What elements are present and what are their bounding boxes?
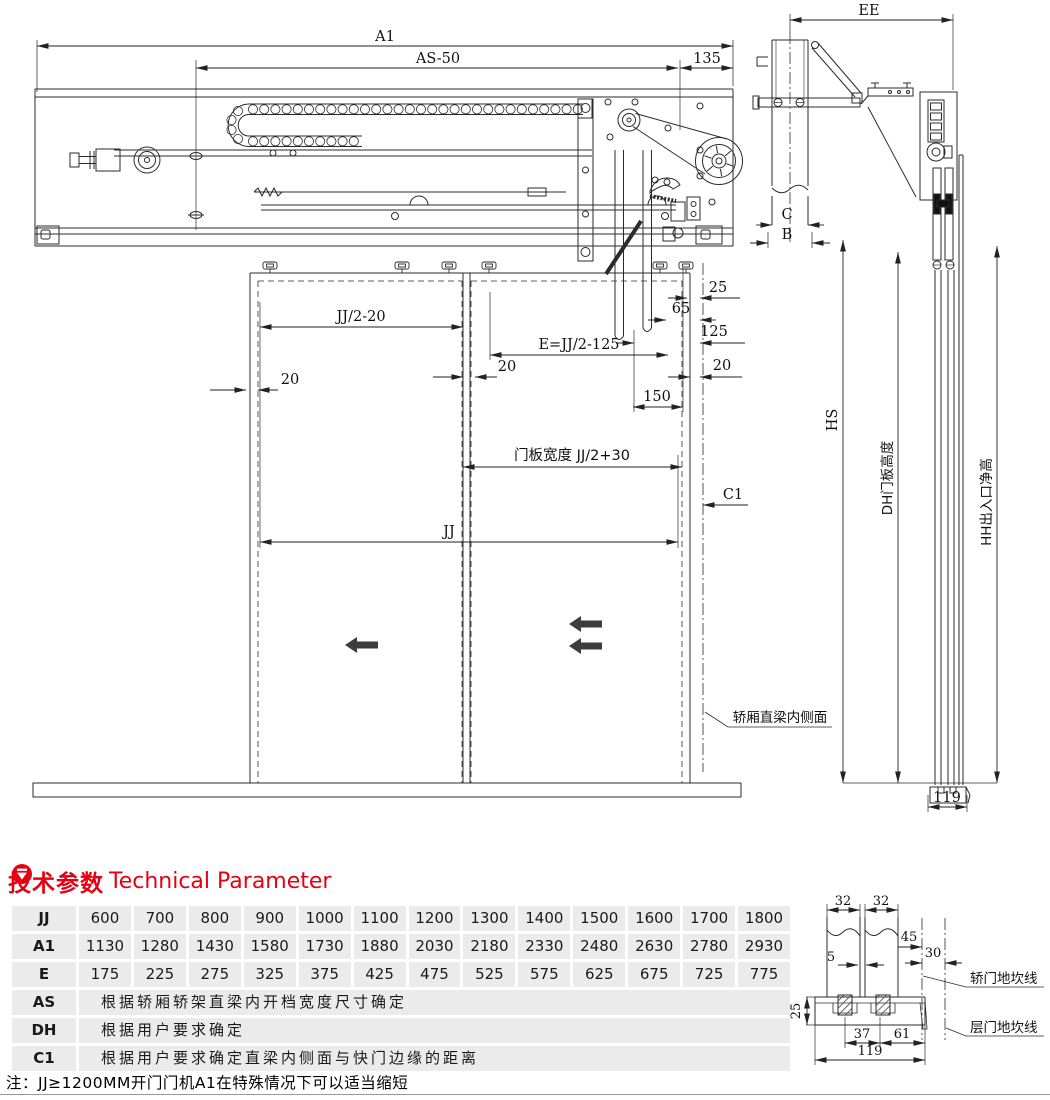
param-value: 1100	[354, 906, 406, 931]
dim-5: 5	[827, 950, 835, 965]
param-row-C1: C1根据用户要求确定直梁内侧面与快门边缘的距离	[12, 1046, 790, 1071]
param-value: 1800	[738, 906, 790, 931]
param-value: 1400	[518, 906, 570, 931]
dim-b: B	[782, 227, 793, 243]
param-value: 475	[409, 962, 461, 987]
param-value: 725	[683, 962, 735, 987]
params-section-title: 技术参数 Technical Parameter	[8, 864, 331, 898]
param-value: 1600	[628, 906, 680, 931]
label-landing-sill-line: 层门地坎线	[970, 1020, 1038, 1036]
param-value: 1200	[409, 906, 461, 931]
dim-32-right: 32	[873, 894, 890, 909]
dim-32-left: 32	[835, 894, 852, 909]
params-title-en: Technical Parameter	[109, 869, 331, 894]
dim-135: 135	[693, 51, 721, 67]
param-label: E	[12, 962, 76, 987]
param-value: 275	[189, 962, 241, 987]
dim-jj: JJ	[441, 524, 455, 540]
param-value: 1700	[683, 906, 735, 931]
technical-parameter-table: JJ60070080090010001100120013001400150016…	[12, 906, 790, 1074]
dim-c: C	[781, 207, 792, 223]
front-view-structure	[33, 60, 832, 797]
param-value: 625	[573, 962, 625, 987]
dim-119-sill: 119	[858, 1044, 883, 1059]
param-value: 225	[134, 962, 186, 987]
bottom-divider	[0, 1094, 1050, 1095]
param-row-A1: A111301280143015801730188020302180233024…	[12, 934, 790, 959]
dim-65: 65	[672, 301, 690, 317]
dim-61: 61	[894, 1027, 911, 1042]
param-value: 375	[299, 962, 351, 987]
param-value: 1000	[299, 906, 351, 931]
param-value: 2930	[738, 934, 790, 959]
dim-20-left: 20	[281, 372, 299, 388]
dim-a1: A1	[374, 29, 395, 45]
param-value: 775	[738, 962, 790, 987]
param-row-JJ: JJ60070080090010001100120013001400150016…	[12, 906, 790, 931]
dim-30: 30	[925, 946, 942, 961]
param-description: 根据用户要求确定	[79, 1018, 790, 1043]
param-value: 1130	[79, 934, 131, 959]
sill-detail-drawing: 32 32 45 30 5 25 37 61 119 轿门地坎线 层门地坎线	[780, 872, 1050, 1072]
dim-37: 37	[854, 1027, 871, 1042]
param-value: 1300	[463, 906, 515, 931]
param-value: 325	[244, 962, 296, 987]
param-value: 1580	[244, 934, 296, 959]
param-label: AS	[12, 990, 76, 1015]
param-label: C1	[12, 1046, 76, 1071]
param-value: 675	[628, 962, 680, 987]
param-row-AS: AS根据轿厢轿架直梁内开档宽度尺寸确定	[12, 990, 790, 1015]
dim-e-formula: E=JJ/2-125	[538, 337, 619, 353]
dim-20-center: 20	[498, 359, 516, 375]
param-value: 2630	[628, 934, 680, 959]
param-value: 900	[244, 906, 296, 931]
sill-detail-labels: 32 32 45 30 5 25 37 61 119 轿门地坎线 层门地坎线	[789, 894, 1038, 1059]
param-value: 600	[79, 906, 131, 931]
dim-c1: C1	[723, 487, 743, 503]
dim-ee: EE	[858, 3, 879, 19]
footnote: 注：JJ≥1200MM开门门机A1在特殊情况下可以适当缩短	[6, 1071, 408, 1093]
param-value: 1430	[189, 934, 241, 959]
param-row-E: E175225275325375425475525575625675725775	[12, 962, 790, 987]
param-row-DH: DH根据用户要求确定	[12, 1018, 790, 1043]
param-value: 2780	[683, 934, 735, 959]
dimension-labels: A1 AS-50 135 JJ/2-20 E=JJ/2-125 20 20 25…	[281, 3, 995, 806]
section-marker-icon	[12, 864, 32, 884]
param-value: 1280	[134, 934, 186, 959]
dim-150: 150	[643, 389, 671, 405]
dim-hs: HS	[825, 409, 841, 432]
label-car-sill-line: 轿门地坎线	[970, 971, 1038, 987]
dim-125: 125	[700, 324, 728, 340]
param-value: 1880	[354, 934, 406, 959]
side-view-structure	[753, 14, 997, 803]
param-value: 800	[189, 906, 241, 931]
dimension-lines	[37, 14, 997, 812]
param-value: 1730	[299, 934, 351, 959]
dim-20-right: 20	[713, 358, 731, 374]
dim-jj2-20: JJ/2-20	[334, 309, 385, 325]
param-label: JJ	[12, 906, 76, 931]
dim-door-panel-width: 门板宽度 JJ/2+30	[514, 446, 630, 464]
sill-detail-dimensions	[807, 910, 962, 1060]
door-motion-arrows	[345, 616, 602, 654]
dim-45: 45	[901, 930, 918, 945]
param-value: 2480	[573, 934, 625, 959]
dim-hh-clear-height: HH出入口净高	[978, 458, 995, 546]
param-value: 525	[463, 962, 515, 987]
dim-119-side: 119	[933, 790, 961, 806]
dim-dh-door-height: DH门板高度	[879, 441, 896, 516]
param-value: 575	[518, 962, 570, 987]
page: A1 AS-50 135 JJ/2-20 E=JJ/2-125 20 20 25…	[0, 0, 1050, 1100]
param-value: 2030	[409, 934, 461, 959]
param-label: DH	[12, 1018, 76, 1043]
door-operator-assembly-drawing: A1 AS-50 135 JJ/2-20 E=JJ/2-125 20 20 25…	[0, 0, 1050, 840]
param-label: A1	[12, 934, 76, 959]
param-value: 1500	[573, 906, 625, 931]
label-car-beam-inner-face: 轿厢直梁内侧面	[733, 710, 828, 726]
dim-as-50: AS-50	[415, 51, 460, 67]
param-value: 175	[79, 962, 131, 987]
param-value: 2330	[518, 934, 570, 959]
param-value: 425	[354, 962, 406, 987]
dim-25-sill: 25	[789, 1003, 804, 1020]
dim-25: 25	[709, 280, 727, 296]
param-value: 700	[134, 906, 186, 931]
param-description: 根据用户要求确定直梁内侧面与快门边缘的距离	[79, 1046, 790, 1071]
param-description: 根据轿厢轿架直梁内开档宽度尺寸确定	[79, 990, 790, 1015]
param-value: 2180	[463, 934, 515, 959]
